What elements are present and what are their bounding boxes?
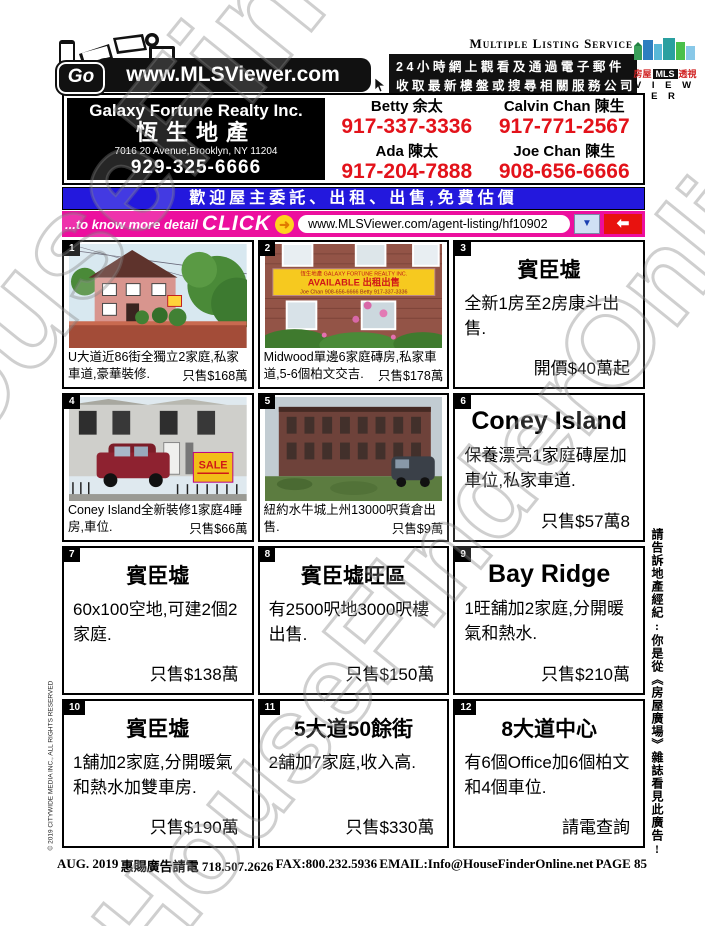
listing-photo bbox=[69, 244, 247, 348]
photo-banner-line3: Joe Chan 908-656-6666 Betty 917-337-3336 bbox=[300, 290, 407, 296]
listing-price: 只售$66萬 bbox=[184, 521, 247, 538]
listing-number: 1 bbox=[64, 242, 80, 256]
photo-sale-sign: SALE bbox=[199, 459, 228, 471]
listing-price: 只售$9萬 bbox=[387, 521, 443, 538]
tagline-line1: 24小時網上觀看及通過電子郵件 bbox=[396, 58, 630, 77]
listing-desc: 1旺舖加2家庭,分開暖氣和熱水. bbox=[464, 597, 634, 646]
listing-title: 賓臣墟 bbox=[464, 254, 634, 284]
agent-phone: 917-771-2567 bbox=[486, 116, 644, 138]
listing-number: 6 bbox=[455, 395, 471, 409]
listing-title: 8大道中心 bbox=[464, 713, 634, 743]
listing-photo: SALE bbox=[69, 397, 247, 501]
listing-caption: 紐約水牛城上州13000呎貨倉出售. 只售$9萬 bbox=[264, 502, 444, 538]
welcome-banner: 歡迎屋主委託、出租、出售,免費估價 bbox=[62, 187, 645, 210]
listing-8: 8 賓臣墟旺區 有2500呎地3000呎樓出售. 只售$150萬 bbox=[258, 546, 450, 695]
listing-photo bbox=[265, 397, 443, 501]
agent-name: Betty 余太 bbox=[328, 95, 486, 116]
listing-title: 5大道50餘街 bbox=[269, 713, 439, 743]
listing-title: 賓臣墟 bbox=[73, 560, 243, 590]
listing-number: 2 bbox=[260, 242, 276, 256]
listing-2: 2 恆生地產 GALAXY FORTUNE REALTY INC. AVAILA… bbox=[258, 240, 450, 389]
listing-11: 11 5大道50餘街 2舖加7家庭,收入高. 只售$330萬 bbox=[258, 699, 450, 848]
agent-name: Joe Chan 陳生 bbox=[486, 140, 644, 161]
listing-number: 8 bbox=[260, 548, 276, 562]
photo-banner-line2: AVAILABLE 出租出售 bbox=[307, 277, 399, 288]
go-badge[interactable]: Go bbox=[57, 62, 105, 94]
listing-price: 只售$138萬 bbox=[73, 660, 243, 685]
listing-price: 只售$178萬 bbox=[373, 368, 443, 385]
realty-name-cn: 恆生地產 bbox=[67, 121, 325, 145]
listing-desc: 保養漂亮1家庭磚屋加車位,私家車道. bbox=[464, 444, 634, 493]
footer-ad-phone: 惠賜廣告請電 718.507.2626 bbox=[121, 856, 274, 875]
click-bar: ...to know more detail CLICK ➜ www.MLSVi… bbox=[62, 211, 645, 237]
listing-price: 開價$40萬起 bbox=[464, 354, 634, 379]
listing-5: 5 紐約水牛城上州13000呎貨倉 bbox=[258, 393, 450, 542]
footer: AUG. 2019 惠賜廣告請電 718.507.2626 FAX:800.23… bbox=[57, 856, 647, 875]
listing-desc: 60x100空地,可建2個2家庭. bbox=[73, 598, 243, 647]
listing-desc: 有6個Office加6個柏文和4個車位. bbox=[464, 751, 634, 800]
realty-name-en: Galaxy Fortune Realty Inc. bbox=[67, 101, 325, 121]
listing-price: 只售$210萬 bbox=[464, 660, 634, 685]
listing-number: 11 bbox=[260, 701, 281, 715]
listing-title: 賓臣墟 bbox=[73, 713, 243, 743]
listing-12: 12 8大道中心 有6個Office加6個柏文和4個車位. 請電查詢 bbox=[453, 699, 645, 848]
listing-price: 只售$330萬 bbox=[269, 813, 439, 838]
footer-date: AUG. 2019 bbox=[57, 856, 118, 875]
header: Go www.MLSViewer.com Multiple Listing Se… bbox=[57, 36, 702, 92]
agents-list: Betty 余太 917-337-3336 Calvin Chan 陳生 917… bbox=[328, 95, 643, 183]
listing-title: 賓臣墟旺區 bbox=[269, 560, 439, 590]
listing-number: 9 bbox=[455, 548, 471, 562]
agent-listing-url[interactable]: www.MLSViewer.com/agent-listing/hf10902 bbox=[298, 215, 570, 233]
realty-card: Galaxy Fortune Realty Inc. 恆生地產 7016 20 … bbox=[67, 98, 325, 180]
realty-address: 7016 20 Avenue,Brooklyn, NY 11204 bbox=[67, 146, 325, 157]
listing-caption: Midwood單邊6家庭磚房,私家車道,5-6個柏文交吉. 只售$178萬 bbox=[264, 349, 444, 385]
footer-email: EMAIL:Info@HouseFinderOnline.net bbox=[379, 856, 593, 875]
listing-desc: 1舖加2家庭,分開暖氣和熱水加雙車房. bbox=[73, 751, 243, 800]
ad-page: Go www.MLSViewer.com Multiple Listing Se… bbox=[0, 0, 705, 926]
listing-title: Coney Island bbox=[464, 407, 634, 436]
agent-name: Calvin Chan 陳生 bbox=[486, 95, 644, 116]
agent-phone: 908-656-6666 bbox=[486, 161, 644, 183]
agent-phone: 917-337-3336 bbox=[328, 116, 486, 138]
listing-caption: U大道近86街全獨立2家庭,私家車道,豪華裝修. 只售$168萬 bbox=[68, 349, 248, 385]
listing-desc: 全新1房至2房康斗出售. bbox=[464, 292, 634, 341]
agent-joe: Joe Chan 陳生 908-656-6666 bbox=[486, 140, 644, 183]
listing-price: 只售$190萬 bbox=[73, 813, 243, 838]
agent-name: Ada 陳太 bbox=[328, 140, 486, 161]
listing-title: Bay Ridge bbox=[464, 560, 634, 589]
listings-grid: 1 bbox=[62, 240, 645, 848]
footer-page-number: PAGE 85 bbox=[596, 856, 647, 875]
click-prefix: ...to know more detail bbox=[65, 217, 198, 232]
listing-caption: Coney Island全新裝修1家庭4睡房,車位. 只售$66萬 bbox=[68, 502, 248, 538]
back-arrow-button[interactable]: ⬅ bbox=[604, 214, 642, 234]
site-url[interactable]: www.MLSViewer.com bbox=[95, 58, 371, 92]
listing-desc: 2舖加7家庭,收入高. bbox=[269, 751, 439, 776]
left-copyright-note: © 2019 CITYWIDE MEDIA INC., ALL RIGHTS R… bbox=[48, 681, 55, 851]
agent-phone: 917-204-7888 bbox=[328, 161, 486, 183]
dropdown-button[interactable]: ▼ bbox=[574, 214, 600, 234]
listing-4: 4 SALE bbox=[62, 393, 254, 542]
listing-price: 只售$168萬 bbox=[177, 368, 247, 385]
listing-price: 只售$150萬 bbox=[269, 660, 439, 685]
listing-price: 只售$57萬8 bbox=[464, 507, 634, 532]
listing-number: 4 bbox=[64, 395, 80, 409]
listing-photo: 恆生地產 GALAXY FORTUNE REALTY INC. AVAILABL… bbox=[265, 244, 443, 348]
agent-betty: Betty 余太 917-337-3336 bbox=[328, 95, 486, 138]
footer-fax: FAX:800.232.5936 bbox=[276, 856, 378, 875]
listing-6: 6 Coney Island 保養漂亮1家庭磚屋加車位,私家車道. 只售$57萬… bbox=[453, 393, 645, 542]
listing-number: 10 bbox=[64, 701, 85, 715]
logo-mls-chip: MLS bbox=[653, 69, 678, 79]
logo-cn-left: 房屋 bbox=[633, 69, 651, 79]
agent-ada: Ada 陳太 917-204-7888 bbox=[328, 140, 486, 183]
agent-calvin: Calvin Chan 陳生 917-771-2567 bbox=[486, 95, 644, 138]
logo-cn-right: 透視 bbox=[679, 69, 697, 79]
listing-number: 3 bbox=[455, 242, 471, 256]
listing-10: 10 賓臣墟 1舖加2家庭,分開暖氣和熱水加雙車房. 只售$190萬 bbox=[62, 699, 254, 848]
realty-phone: 929-325-6666 bbox=[67, 157, 325, 179]
cursor-icon bbox=[374, 78, 386, 92]
arrow-circle-icon[interactable]: ➜ bbox=[275, 215, 294, 234]
logo-text-row: 房屋MLS透視 bbox=[628, 69, 702, 79]
click-button[interactable]: CLICK bbox=[202, 212, 271, 236]
listing-number: 7 bbox=[64, 548, 80, 562]
listing-7: 7 賓臣墟 60x100空地,可建2個2家庭. 只售$138萬 bbox=[62, 546, 254, 695]
buildings-icon bbox=[632, 36, 698, 64]
listing-number: 5 bbox=[260, 395, 276, 409]
mls-service-label: Multiple Listing Service bbox=[389, 36, 637, 52]
realty-info-box: Galaxy Fortune Realty Inc. 恆生地產 7016 20 … bbox=[62, 93, 645, 185]
listing-3: 3 賓臣墟 全新1房至2房康斗出售. 開價$40萬起 bbox=[453, 240, 645, 389]
listing-price: 請電查詢 bbox=[464, 813, 634, 838]
listing-number: 12 bbox=[455, 701, 476, 715]
listing-1: 1 bbox=[62, 240, 254, 389]
listing-9: 9 Bay Ridge 1旺舖加2家庭,分開暖氣和熱水. 只售$210萬 bbox=[453, 546, 645, 695]
right-vertical-note: 請告訴地產經紀:你是從《房屋廣場》雜誌看見此廣告! bbox=[649, 528, 666, 863]
listing-desc: 有2500呎地3000呎樓出售. bbox=[269, 598, 439, 647]
header-middle: Multiple Listing Service 24小時網上觀看及通過電子郵件… bbox=[389, 36, 637, 101]
